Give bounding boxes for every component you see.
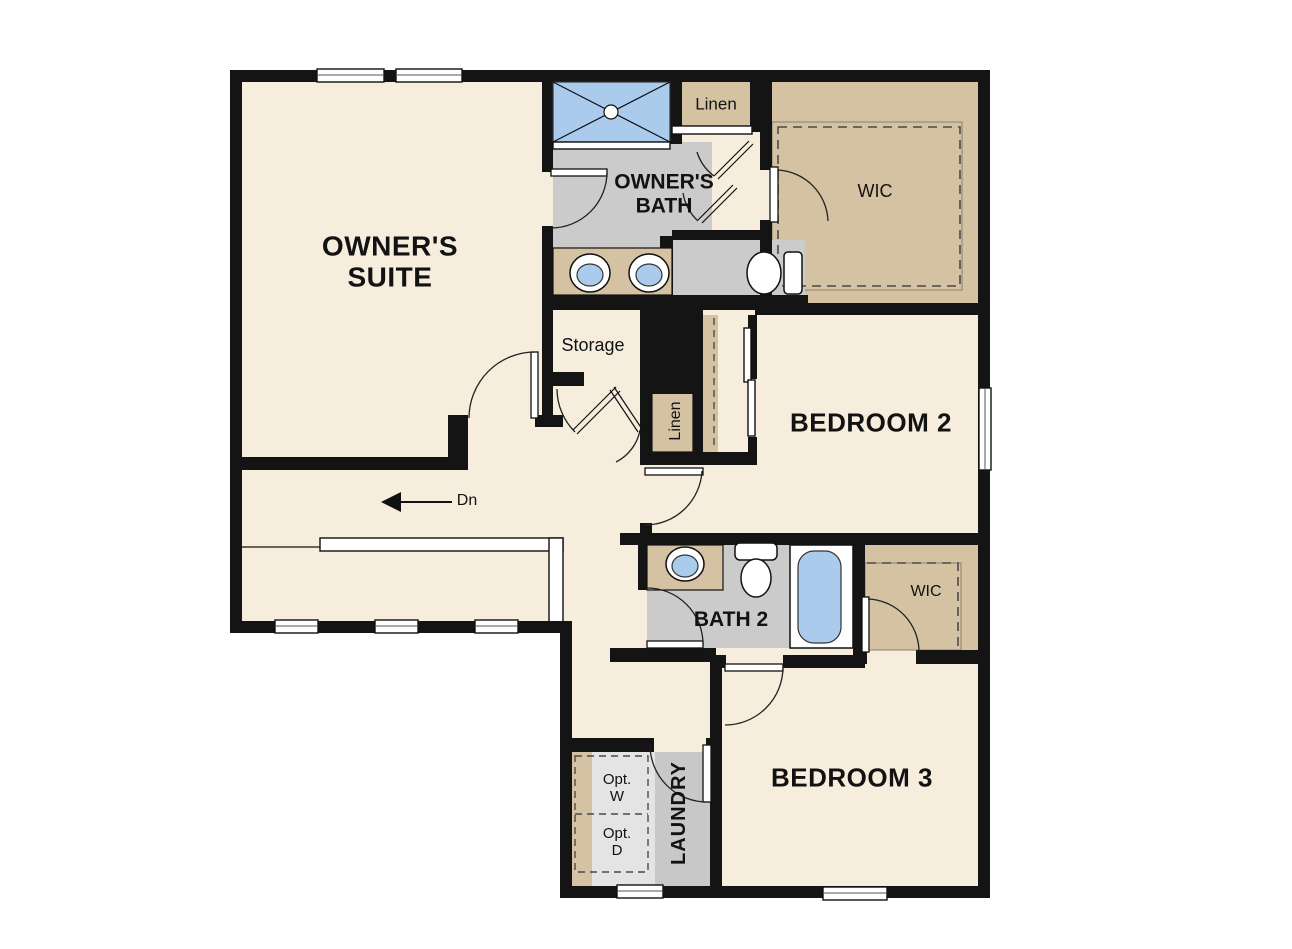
window <box>475 620 518 633</box>
room-label-linen-upper: Linen <box>695 94 737 113</box>
room-label-owners-bath: OWNER'SBATH <box>614 170 714 217</box>
room-label-linen-hall: Linen <box>667 401 685 440</box>
room-label-wic-secondary: WIC <box>910 583 941 601</box>
room-label-bath-2: BATH 2 <box>694 608 768 632</box>
room-label-laundry: LAUNDRY <box>668 761 690 865</box>
bedroom2-closet-shelf <box>702 315 718 452</box>
shower <box>553 82 670 149</box>
chase-void <box>640 310 702 394</box>
stairs-direction-label: Dn <box>457 492 477 510</box>
stair-side-wall <box>549 538 563 622</box>
floor-plan-drawing <box>0 0 1292 949</box>
room-label-wic-owners: WIC <box>858 181 893 201</box>
shower-drain <box>604 105 618 119</box>
window <box>396 69 462 82</box>
room-label-bedroom-2: BEDROOM 2 <box>790 408 952 437</box>
linen-opening <box>672 126 752 134</box>
stair-railing <box>320 538 563 551</box>
room-label-owners-suite: OWNER'SSUITE <box>322 231 458 294</box>
window <box>823 887 887 900</box>
window <box>979 388 991 470</box>
room-label-storage: Storage <box>561 335 624 355</box>
optional-washer-label: Opt.W <box>603 772 631 806</box>
owners-vanity <box>553 248 672 295</box>
window <box>375 620 418 633</box>
shower-curb <box>553 142 670 149</box>
toilet <box>747 252 802 294</box>
bath2-vanity <box>647 545 723 590</box>
room-label-bedroom-3: BEDROOM 3 <box>771 763 933 792</box>
window <box>317 69 384 82</box>
optional-dryer-label: Opt.D <box>603 826 631 860</box>
window <box>617 885 663 898</box>
bathtub <box>790 545 853 648</box>
floor-plan: OWNER'SSUITE OWNER'SBATH Linen WIC Stora… <box>0 0 1292 949</box>
window <box>275 620 318 633</box>
